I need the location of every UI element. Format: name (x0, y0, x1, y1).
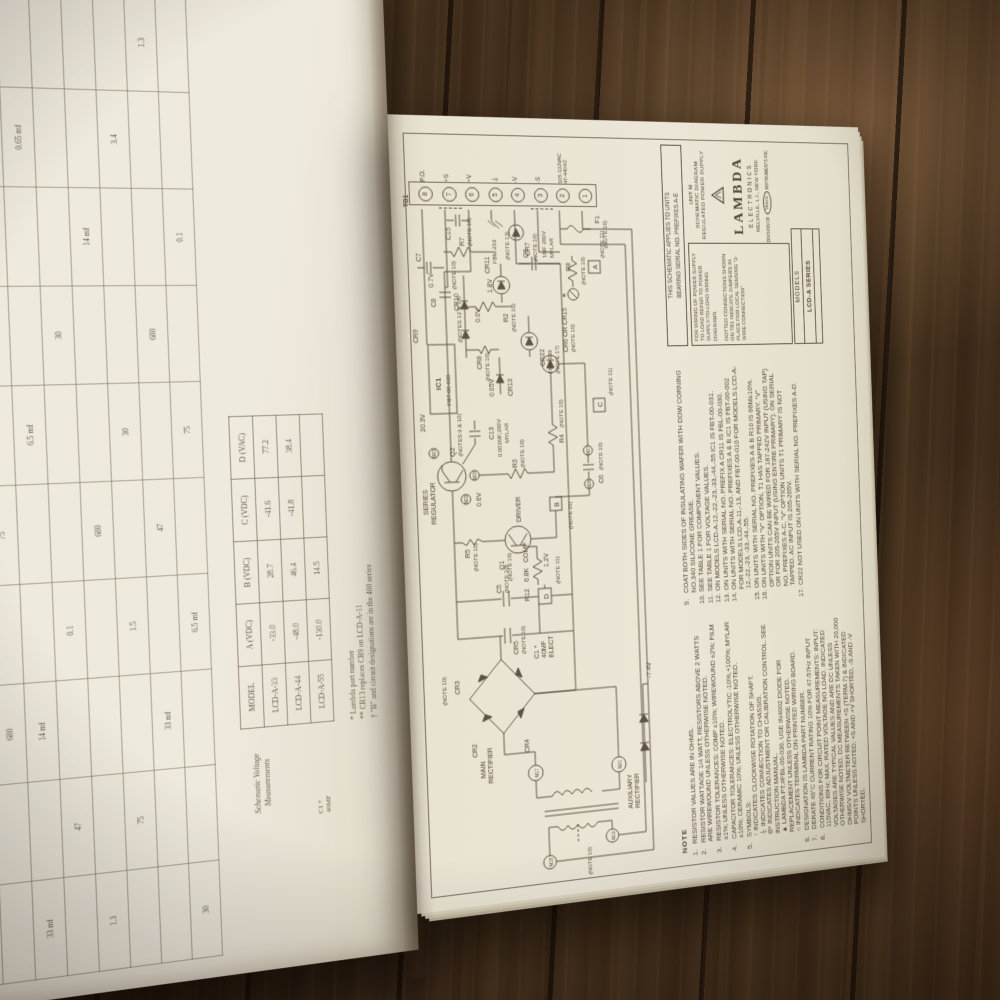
grid-cell: 680 (135, 285, 170, 382)
terminal-label: +S (443, 174, 450, 182)
notes-heading: NOTE (681, 828, 690, 853)
grid-cell (139, 382, 174, 480)
grid-cell (0, 782, 32, 884)
voltage-cell (299, 414, 324, 476)
grid-cell (4, 187, 40, 287)
component-value-table: 1.3301.5680753.433 mf14 mf6.5 mf0.65 mf4… (0, 0, 223, 989)
grid-cell (173, 477, 207, 575)
voltage-cell: 28.7 (257, 539, 283, 602)
terminal-number: 1 (578, 189, 592, 204)
grid-cell (119, 674, 154, 774)
grid-cell: 14 mf (68, 187, 104, 285)
terminal-label: P.O. (419, 169, 426, 181)
grid-cell: 47 (143, 479, 178, 577)
note-item: 5.SYMBOLS: ↑ INDICATES CLOCKWISE ROTATIO… (738, 614, 803, 850)
voltage-cell: LCD-A-33 (262, 663, 288, 727)
note-number: 17. (798, 587, 805, 597)
tb1-terminal-row: 8P.O. (412, 134, 438, 210)
voltage-cell: 77.2 (252, 415, 278, 478)
grid-cell (146, 575, 181, 674)
terminal-number: 3 (533, 188, 547, 203)
serial-prefix-line2: BEARING SERIAL NO. PREFIXES A-E (673, 193, 683, 298)
grid-cell: 0.1 (52, 581, 88, 681)
grid-cell (76, 384, 111, 483)
grid-cell: 47 (60, 776, 96, 877)
grid-cell: 3.4 (96, 90, 131, 188)
terminal-number: 2 (556, 188, 570, 203)
grid-cell: 680 (80, 481, 115, 580)
grid-cell: 0.1 (162, 189, 196, 286)
instruments-inc: INSTRUMENTS INC. (763, 149, 769, 189)
terminal-number: 5 (488, 187, 503, 202)
grid-cell (158, 863, 192, 963)
grid-cell (100, 188, 135, 286)
note-number: 9. (683, 599, 691, 605)
voltage-cell: LCD-A-44 (285, 661, 311, 725)
grid-cell (185, 764, 219, 863)
c1-value: 40MF (324, 795, 333, 813)
grid-cell (88, 676, 123, 776)
grid-cell (158, 92, 192, 189)
wiring-paragraph-2: DOTTED CONNECTIONS SHOWN ON TB1 INDICATE… (721, 248, 749, 341)
voltage-cell: -33.0 (260, 601, 286, 665)
note-number: 10. (699, 594, 707, 604)
grid-cell (127, 91, 162, 189)
grid-cell (166, 285, 200, 382)
grid-cell (28, 779, 64, 881)
tb1-terminal-row: 4-V (505, 136, 530, 210)
tb1-terminal-strip: TB1 105-132VAC 47-440HZ 8P.O.7+S6+V5⏚4-V… (407, 134, 598, 211)
note-text: CONDITIONS FOR CIRCUIT POINT MEASUREMENT… (811, 617, 866, 828)
grid-cell (92, 0, 127, 91)
grid-cell (64, 874, 100, 976)
grid-cell (72, 286, 108, 385)
schematic-voltage-table: MODELA (VDC)B (VDC)C (VDC)D (VAC)LCD-A-3… (228, 413, 334, 729)
grid-cell: 1.3 (124, 0, 159, 92)
grid-cell (60, 0, 96, 90)
grid-cell: 75 (170, 381, 204, 478)
notes-column-1: 1.RESISTOR VALUES ARE IN OHMS.2.RESISTOR… (684, 609, 868, 856)
grid-cell: 33 mf (32, 878, 68, 980)
schematic-sheet: M18 M19 M17 M21 M23 M22 M20 M26 M27 (NOT… (401, 131, 874, 901)
note-number: 1. (692, 849, 700, 856)
division-of: DIVISION OF (766, 217, 771, 243)
terminal-number: 6 (465, 187, 480, 202)
models-box: MODELS LCD-A SERIES (791, 228, 824, 344)
voltage-cell: LCD-A-55 (309, 660, 334, 723)
grid-cell (111, 480, 146, 579)
grid-cell (131, 188, 166, 285)
note-item: 8.CONDITIONS FOR CIRCUIT POINT MEASUREME… (812, 609, 868, 840)
terminal-number: 7 (442, 187, 457, 202)
grid-cell (155, 0, 189, 93)
right-page: M18 M19 M17 M21 M23 M22 M20 M26 M27 (NOT… (387, 114, 882, 914)
voltage-cell: 46.4 (281, 538, 307, 601)
note-number: 2. (700, 848, 707, 855)
grid-cell (16, 484, 52, 585)
notes-block: NOTE 1.RESISTOR VALUES ARE IN OHMS.2.RES… (666, 345, 869, 857)
grid-cell: 0.65 mf (0, 87, 36, 187)
terminal-label: +V (466, 174, 473, 182)
terminal-number: 4 (511, 188, 525, 203)
tb1-terminal-row: 3-S (528, 137, 553, 211)
grid-cell (48, 483, 84, 583)
left-page-rotated-sheet: 1.3301.5680753.433 mf14 mf6.5 mf0.65 mf4… (0, 0, 402, 989)
voltage-cell: -130.0 (306, 598, 331, 661)
voltage-cell (302, 475, 327, 538)
grid-cell: 14 mf (24, 681, 60, 782)
tb1-terminal-row: 6+V (459, 135, 485, 210)
note-number: 8. (819, 834, 826, 841)
brand-name: LAMBDA (730, 146, 748, 245)
voltage-header-cell: D (VAC) (229, 416, 255, 479)
grid-cell (92, 773, 127, 874)
terminal-label: ⏚ (489, 176, 499, 182)
note-number: 4. (731, 845, 738, 852)
grid-cell (127, 867, 162, 967)
grid-cell (8, 286, 44, 386)
tb1-terminal-row: 2 (550, 137, 575, 211)
grid-cell: 1.3 (96, 870, 131, 971)
grid-cell (0, 0, 32, 88)
veeco-logo: Veeco (763, 192, 772, 215)
voltage-header-cell: C (VDC) (231, 478, 257, 542)
wiring-paragraph-1: FOR WIRING OF POWER SUPPLY TO LOAD REFER… (692, 247, 720, 341)
open-manual-book: 1.3301.5680753.433 mf14 mf6.5 mf0.65 mf4… (0, 0, 880, 1000)
grid-cell: 33 mf (150, 671, 185, 770)
left-page: 1.3301.5680753.433 mf14 mf6.5 mf0.65 mf4… (0, 0, 419, 1000)
grid-cell: 30 (40, 286, 76, 385)
grid-cell: 1.5 (115, 577, 150, 676)
grid-cell (56, 679, 92, 780)
voltage-cell: 14.5 (304, 537, 329, 600)
voltage-cell: 38.4 (276, 415, 302, 478)
grid-cell (154, 767, 188, 866)
tb1-terminal-row: 1 (573, 138, 598, 211)
table-footnotes: * Lambda part number** CR13 replaces CR9… (343, 564, 379, 720)
grid-cell: 30 (108, 383, 143, 481)
terminal-label: -S (535, 177, 542, 183)
voltage-header-cell: B (VDC) (234, 541, 260, 605)
note-number: 3. (716, 846, 723, 853)
grid-cell (181, 669, 215, 767)
note-number: 14. (731, 592, 739, 602)
voltage-cell: -48.0 (283, 600, 309, 663)
tb1-terminal-row: 5⏚ (482, 135, 508, 210)
grid-cell (20, 583, 56, 684)
notes-column-2: 9.COAT BOTH SIDES OF INSULATING WAFER WI… (675, 359, 860, 605)
voltage-cell: -41.8 (278, 476, 304, 539)
terminal-number: 8 (418, 186, 433, 201)
left-capacitor-label: C1 * 40MF (316, 795, 333, 814)
voltage-table-title-line2: Measurements (262, 758, 273, 806)
grid-cell: 6.5 mf (12, 385, 48, 485)
voltage-header-cell: A (VDC) (236, 603, 262, 667)
note-number: 16. (761, 590, 768, 600)
wiring-info-box: FOR WIRING OF POWER SUPPLY TO LOAD REFER… (688, 243, 793, 346)
grid-cell (36, 187, 72, 286)
title-block: UNIT M SCHEMATIC DIAGRAM REGULATED POWER… (685, 145, 773, 245)
lambda-triangle-logo (710, 186, 725, 205)
grid-cell: 6.5 mf (177, 573, 211, 671)
grid-cell (84, 579, 119, 679)
grid-cell: 30 (189, 860, 223, 959)
note-number: 7. (812, 835, 819, 842)
note-text: SYMBOLS: ↑ INDICATES CLOCKWISE ROTATION … (744, 624, 802, 837)
grid-cell (64, 89, 100, 188)
tb1-terminal-row: 7+S (436, 134, 462, 209)
voltage-header-cell: MODEL (238, 665, 264, 729)
voltage-table-title: Schematic Voltage Measurements (251, 735, 275, 831)
grid-cell (28, 0, 64, 89)
terminal-label: -V (512, 177, 519, 183)
note-number: 12. (715, 593, 723, 603)
voltage-cell: -41.6 (255, 477, 281, 540)
note-number: 5. (746, 843, 753, 850)
grid-cell (0, 881, 36, 984)
grid-cell: 75 (123, 770, 158, 870)
grid-cell (32, 88, 68, 188)
grid-cell (104, 286, 139, 384)
grid-cell (44, 384, 80, 484)
